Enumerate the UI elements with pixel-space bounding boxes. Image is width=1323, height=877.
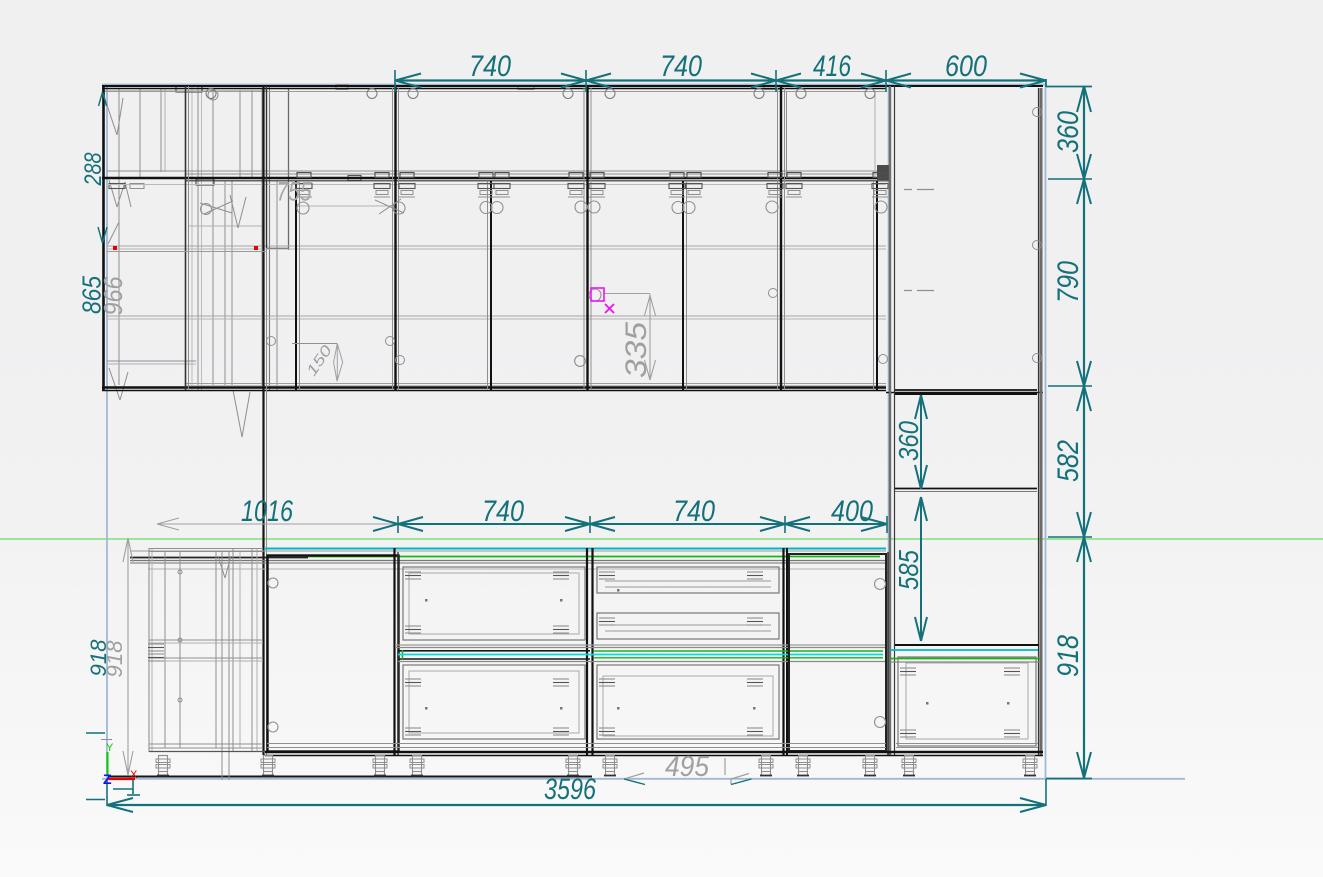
svg-text:X: X (130, 769, 138, 781)
svg-text:740: 740 (660, 50, 702, 83)
svg-text:582: 582 (1052, 440, 1085, 482)
svg-text:495: 495 (665, 751, 710, 783)
svg-text:288: 288 (80, 152, 107, 186)
svg-text:966: 966 (98, 276, 128, 315)
svg-text:790: 790 (1052, 261, 1085, 303)
svg-text:150: 150 (303, 342, 336, 380)
svg-text:740: 740 (469, 50, 511, 83)
svg-text:740: 740 (482, 495, 524, 528)
svg-text:740: 740 (673, 495, 715, 528)
svg-text:360: 360 (1052, 111, 1085, 153)
svg-text:Z: Z (103, 771, 112, 787)
svg-text:918: 918 (102, 640, 127, 678)
svg-text:416: 416 (813, 50, 851, 83)
svg-text:585: 585 (893, 550, 924, 590)
svg-text:Y: Y (106, 742, 114, 754)
svg-text:335: 335 (620, 322, 653, 378)
svg-text:3596: 3596 (544, 773, 596, 806)
svg-text:600: 600 (945, 50, 987, 83)
svg-text:400: 400 (831, 495, 873, 528)
svg-text:1016: 1016 (241, 495, 293, 528)
svg-text:755: 755 (277, 177, 313, 207)
svg-text:360: 360 (893, 421, 924, 461)
svg-text:918: 918 (1052, 635, 1085, 677)
